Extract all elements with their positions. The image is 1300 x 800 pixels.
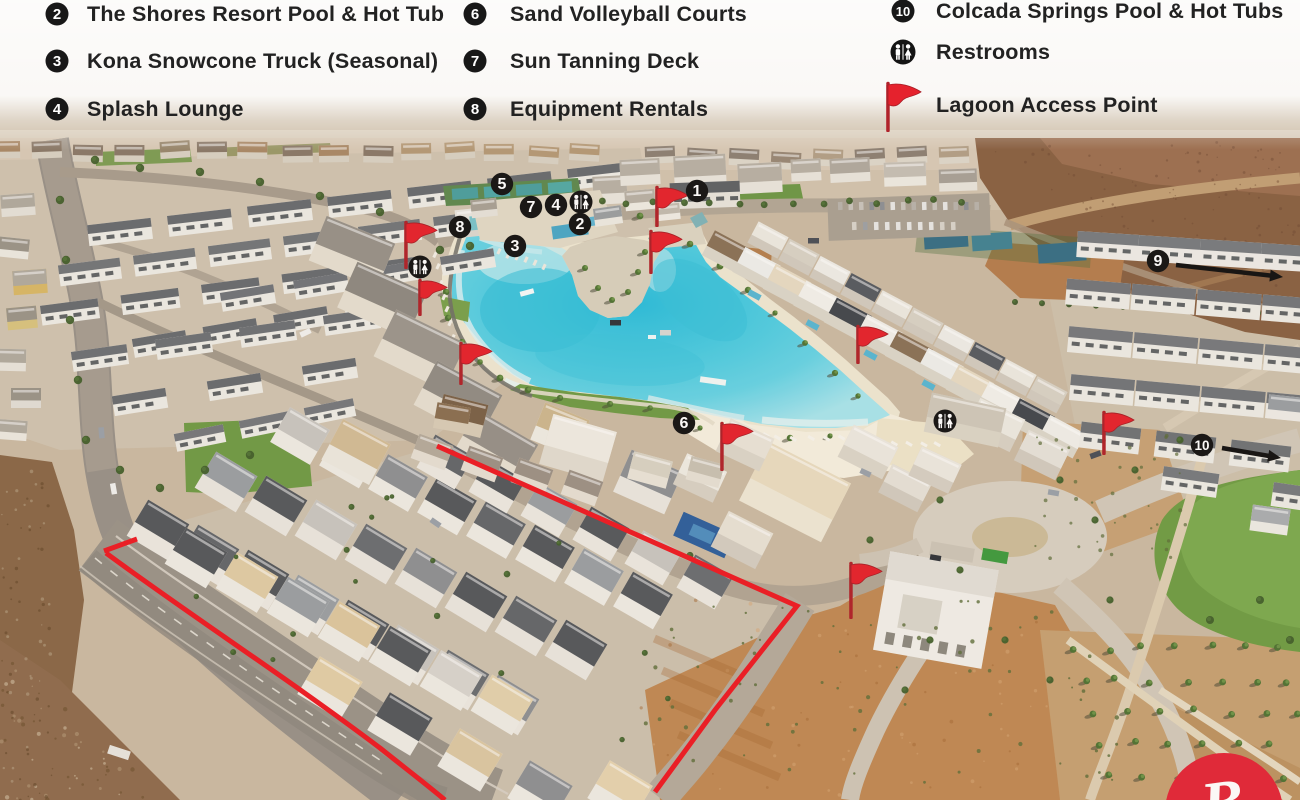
svg-text:3: 3 [53,53,61,70]
svg-text:4: 4 [53,101,62,118]
svg-text:7: 7 [471,53,479,70]
svg-text:Lagoon Access Point: Lagoon Access Point [936,93,1158,117]
svg-text:Splash Lounge: Splash Lounge [87,97,244,121]
svg-text:Kona Snowcone Truck (Seasonal): Kona Snowcone Truck (Seasonal) [87,49,438,73]
svg-text:8: 8 [471,101,479,118]
svg-text:10: 10 [896,4,910,19]
svg-text:Restrooms: Restrooms [936,40,1050,64]
svg-text:Equipment Rentals: Equipment Rentals [510,97,708,121]
svg-text:Sun Tanning Deck: Sun Tanning Deck [510,49,699,73]
svg-text:2: 2 [53,6,61,23]
svg-text:Sand Volleyball Courts: Sand Volleyball Courts [510,2,747,26]
svg-text:The Shores Resort Pool & Hot T: The Shores Resort Pool & Hot Tub [87,2,444,26]
svg-text:6: 6 [471,6,479,23]
svg-text:Colcada Springs Pool & Hot Tub: Colcada Springs Pool & Hot Tubs [936,0,1283,23]
